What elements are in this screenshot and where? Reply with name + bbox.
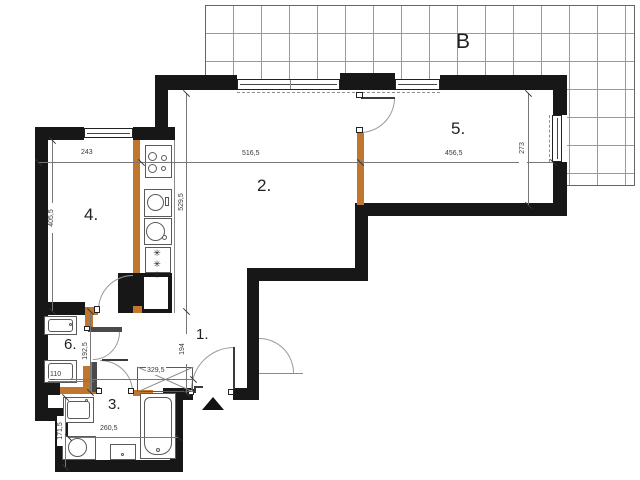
entrance-arrow-icon — [202, 397, 224, 410]
door-jamb — [228, 389, 234, 395]
terrace-edge-right — [634, 5, 635, 186]
door-swing-room5 — [360, 98, 395, 133]
wall-wc-bottom — [35, 383, 60, 395]
dim-wc-depth: 192,5 — [82, 336, 90, 366]
kitchen-counter-edge — [174, 140, 175, 313]
door-jamb — [94, 306, 100, 313]
wall-step-vertical — [155, 88, 168, 140]
wall-entrance-right — [233, 388, 259, 400]
landing-line — [259, 373, 303, 374]
window-kitchen — [84, 128, 133, 138]
door-leaf-bath — [102, 359, 128, 361]
wall-living-top-left — [155, 75, 237, 90]
door-leaf-entrance — [233, 347, 235, 389]
terrace-hatch-grid — [205, 5, 635, 186]
door-swing-room4 — [98, 275, 133, 310]
wall-room5-bottom — [357, 203, 567, 216]
window-sill-dashed-right — [549, 115, 550, 162]
cooktop-burner — [161, 166, 166, 171]
window-living — [237, 79, 340, 90]
dim-hall-depth: 194 — [179, 334, 187, 364]
dim-room5-window-height: 273 — [519, 133, 527, 163]
dim-line-bath-width — [68, 437, 178, 438]
door-swing-entrance — [191, 347, 234, 390]
wc-washbasin-tap — [69, 323, 72, 326]
door-swing-wc — [93, 332, 120, 360]
room-label-1: 1. — [196, 326, 209, 343]
partition-shaft-corner — [133, 306, 142, 313]
room-label-6: 6. — [64, 336, 77, 353]
window-mullion — [290, 80, 291, 89]
window-sill-dashed — [237, 92, 440, 93]
cooktop-burner — [161, 155, 167, 161]
door-jamb — [356, 127, 363, 133]
dim-line-hall-width — [55, 379, 193, 380]
kitchen-sink-2-drain — [162, 235, 167, 240]
door-closer-icon — [194, 386, 196, 393]
dim-line-top — [38, 162, 553, 163]
window-room5-top — [395, 79, 440, 90]
wall-kitchen-top-right — [133, 127, 175, 140]
door-leaf-room5 — [361, 97, 395, 99]
door-jamb — [96, 388, 102, 394]
door-jamb — [356, 92, 363, 98]
dim-bath-width: 260,5 — [99, 425, 119, 433]
washing-machine-dot — [85, 399, 88, 402]
bathroom-sink — [110, 444, 136, 460]
wall-hall-right — [247, 268, 259, 400]
dim-bath-depth: 171,5 — [57, 416, 65, 446]
wall-right-upper — [553, 88, 567, 115]
dim-room4-width: 243 — [80, 149, 94, 157]
fridge-symbol: ✳✳✳ — [152, 249, 161, 282]
cooktop-burner — [148, 164, 157, 173]
wall-room2-bottom — [247, 268, 357, 281]
dim-line-room5-window — [528, 93, 529, 205]
dim-kitchen-wall-run: 529,5 — [178, 187, 186, 217]
kitchen-sink-bowl — [147, 194, 164, 211]
dim-living-width: 516,5 — [241, 150, 261, 158]
room-label-2: 2. — [257, 177, 271, 194]
bathroom-sink-drain — [121, 453, 124, 456]
floor-plan: B — [0, 0, 640, 480]
terrace-edge-top — [205, 5, 635, 6]
dim-wc-width: 110 — [49, 371, 62, 379]
dim-line-wc-width — [48, 381, 94, 382]
dim-line-bath-depth — [65, 397, 66, 467]
window-room5-right — [552, 115, 562, 162]
dim-room4-depth: 405,5 — [48, 203, 56, 233]
wall-top-pier — [340, 73, 395, 90]
door-swing-exterior — [259, 338, 294, 373]
terrace-label: B — [456, 30, 470, 54]
wall-top-right — [440, 75, 567, 90]
room-label-4: 4. — [84, 206, 98, 223]
bathtub-inner — [144, 397, 172, 455]
dim-hall-width: 329,5 — [146, 367, 166, 375]
kitchen-sink-tap — [165, 197, 169, 206]
bathtub-drain — [156, 448, 160, 452]
room-label-5: 5. — [451, 120, 465, 137]
washing-machine-top — [67, 401, 90, 419]
dim-room5-width: 456,5 — [444, 150, 464, 158]
wall-bath-bottom — [55, 460, 183, 472]
terrace-edge-bottom — [567, 185, 635, 186]
cooktop-burner — [148, 152, 157, 161]
door-jamb — [128, 388, 134, 394]
room-label-3: 3. — [108, 396, 121, 413]
partition-room2-room5 — [357, 133, 364, 205]
